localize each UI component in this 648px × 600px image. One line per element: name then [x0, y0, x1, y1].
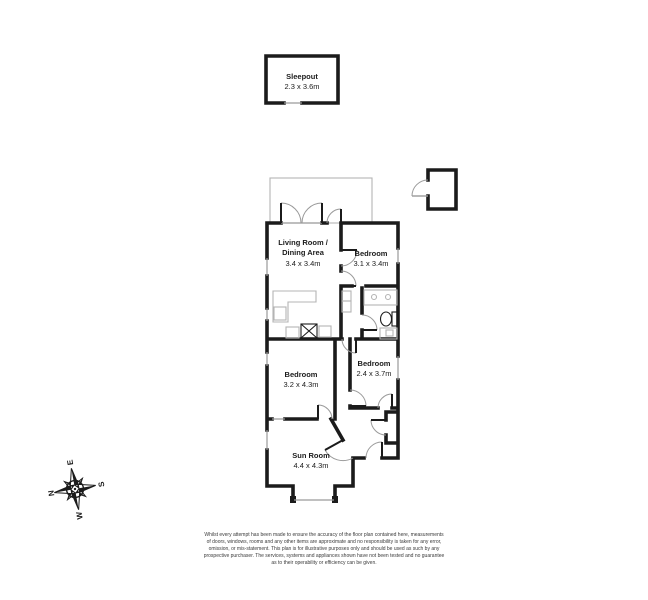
- disclaimer-text: Whilst every attempt has been made to en…: [0, 532, 648, 567]
- room-dims: 4.4 x 4.3m: [293, 461, 328, 470]
- bathroom-door: [362, 315, 377, 330]
- cupboard: [342, 291, 351, 301]
- vanity: [364, 290, 397, 305]
- room-name: Living Room /: [278, 238, 328, 247]
- room-label-bedroom-1: Bedroom 3.1 x 3.4m: [353, 249, 388, 268]
- compass-south-label: S: [97, 480, 107, 487]
- compass-west-label: W: [75, 511, 85, 520]
- room-label-bedroom-2: Bedroom 2.4 x 3.7m: [356, 359, 391, 378]
- room-name: Bedroom: [358, 359, 391, 368]
- room-dims: 3.2 x 4.3m: [283, 380, 318, 389]
- front-door: [366, 442, 382, 458]
- cupboard: [342, 301, 351, 312]
- compass-east-label: E: [65, 458, 75, 465]
- room-dims: 3.1 x 3.4m: [353, 259, 388, 268]
- room-label-bedroom-3: Bedroom 3.2 x 4.3m: [283, 370, 318, 389]
- disclaimer-line: as to their operability or efficiency ca…: [271, 560, 376, 567]
- compass-north-label: N: [46, 489, 56, 496]
- room-dims: 2.3 x 3.6m: [284, 82, 319, 91]
- shower-drain: [386, 330, 393, 336]
- room-label-sun-room: Sun Room 4.4 x 4.3m: [292, 451, 330, 470]
- outhouse-outline: [412, 170, 456, 209]
- entry-closet-door: [371, 420, 386, 435]
- bedroom2-door: [350, 390, 366, 406]
- floor-plan-svg: Sleepout 2.3 x 3.6m Living Room / Dining…: [0, 0, 648, 600]
- room-name: Sun Room: [292, 451, 330, 460]
- basin: [372, 295, 377, 300]
- living-room-deck-door: [327, 209, 341, 223]
- fridge: [274, 307, 286, 320]
- bedroom3-door: [318, 405, 332, 419]
- room-name: Bedroom: [355, 249, 388, 258]
- french-doors-to-deck: [281, 203, 322, 223]
- basin: [386, 295, 391, 300]
- toilet: [381, 312, 392, 326]
- disclaimer-line: of doors, windows, rooms and any other i…: [207, 539, 442, 546]
- compass-rose: N E S W: [42, 454, 112, 525]
- room-name: Dining Area: [282, 248, 325, 257]
- kitchen-unit: [286, 327, 299, 338]
- hallway-door: [341, 271, 356, 286]
- disclaimer-line: Whilst every attempt has been made to en…: [204, 532, 443, 539]
- room-name: Bedroom: [285, 370, 318, 379]
- bathroom-fixtures: [364, 290, 398, 339]
- disclaimer-line: omission, or mis-statement. This plan is…: [209, 546, 440, 553]
- bedroom2-closet-door: [378, 394, 392, 408]
- compass-star: [51, 465, 100, 514]
- room-label-sleepout: Sleepout 2.3 x 3.6m: [284, 72, 319, 91]
- floor-plan-page: Sleepout 2.3 x 3.6m Living Room / Dining…: [0, 0, 648, 600]
- room-label-living-dining: Living Room / Dining Area 3.4 x 3.4m: [278, 238, 328, 268]
- room-dims: 3.4 x 3.4m: [285, 259, 320, 268]
- disclaimer-line: prospective purchaser. The services, sys…: [204, 553, 445, 560]
- room-dims: 2.4 x 3.7m: [356, 369, 391, 378]
- room-name: Sleepout: [286, 72, 318, 81]
- kitchen-unit: [319, 326, 331, 337]
